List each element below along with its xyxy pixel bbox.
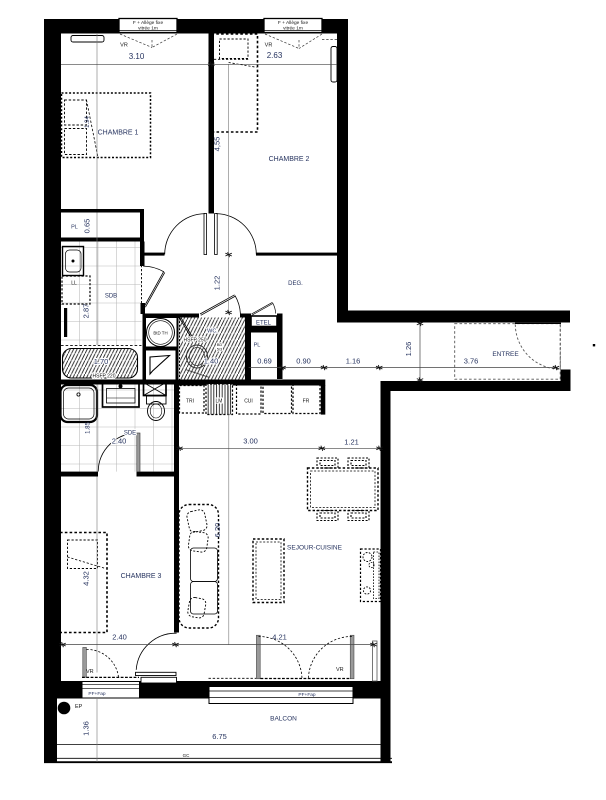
svg-text:HSFP 250: HSFP 250 (184, 338, 207, 344)
svg-text:FR: FR (303, 399, 310, 405)
svg-text:TRI: TRI (186, 399, 194, 405)
svg-text:BtD TH: BtD TH (153, 331, 167, 336)
svg-text:VR: VR (336, 667, 344, 673)
svg-text:1.21: 1.21 (344, 438, 359, 447)
svg-text:VR: VR (86, 669, 94, 675)
svg-text:0.69: 0.69 (257, 357, 272, 366)
svg-text:PF+Fap: PF+Fap (88, 691, 106, 697)
svg-text:DEG.: DEG. (288, 281, 303, 287)
svg-text:VR: VR (120, 43, 128, 49)
svg-text:PL: PL (71, 225, 78, 231)
svg-text:vitrée 1m: vitrée 1m (138, 25, 158, 31)
svg-text:4.21: 4.21 (272, 633, 287, 642)
svg-text:PL: PL (254, 343, 261, 349)
svg-text:WC.: WC. (207, 329, 218, 335)
svg-text:F + Allège fixe: F + Allège fixe (278, 20, 309, 26)
svg-text:SEJOUR-CUISINE: SEJOUR-CUISINE (287, 545, 343, 552)
svg-text:1.40: 1.40 (204, 357, 219, 366)
svg-text:HSFP 220: HSFP 220 (93, 374, 116, 380)
svg-text:GC: GC (183, 753, 191, 758)
svg-text:PF+Fap: PF+Fap (298, 692, 316, 698)
svg-text:CHAMBRE 1: CHAMBRE 1 (98, 130, 139, 137)
svg-text:0.90: 0.90 (296, 357, 311, 366)
svg-text:2.63: 2.63 (267, 51, 283, 60)
svg-text:LM: LM (216, 399, 223, 405)
svg-text:2.87: 2.87 (82, 304, 91, 319)
svg-text:5/3: 5/3 (217, 347, 223, 352)
svg-text:2.40: 2.40 (112, 633, 127, 642)
svg-text:LL: LL (71, 281, 77, 287)
svg-text:1.16: 1.16 (346, 357, 361, 366)
svg-text:1.85: 1.85 (86, 422, 92, 434)
svg-text:2.40: 2.40 (112, 437, 127, 446)
svg-text:VR: VR (265, 43, 273, 49)
svg-text:F + Allège fixe: F + Allège fixe (133, 20, 164, 26)
svg-text:BALCON: BALCON (270, 716, 297, 723)
svg-text:1.26: 1.26 (404, 342, 413, 357)
svg-text:EP: EP (75, 704, 83, 710)
svg-text:ENTREE: ENTREE (492, 351, 519, 358)
svg-text:1.94: 1.94 (85, 116, 91, 128)
svg-text:4,55: 4,55 (213, 137, 222, 152)
svg-text:0.65: 0.65 (83, 219, 92, 234)
svg-text:6.20: 6.20 (213, 523, 222, 538)
svg-text:3.10: 3.10 (129, 52, 145, 61)
svg-text:CHAMBRE 3: CHAMBRE 3 (121, 573, 162, 580)
svg-text:4.32: 4.32 (82, 571, 91, 586)
svg-text:CUI: CUI (244, 399, 253, 405)
svg-text:1.70: 1.70 (94, 357, 109, 366)
svg-text:1.36: 1.36 (82, 721, 91, 736)
svg-text:3.00: 3.00 (243, 437, 258, 446)
svg-text:CHAMBRE 2: CHAMBRE 2 (269, 156, 310, 163)
svg-text:3.76: 3.76 (464, 357, 479, 366)
svg-text:vitrée 1m: vitrée 1m (283, 25, 303, 31)
svg-text:1.22: 1.22 (213, 276, 222, 291)
svg-text:6.75: 6.75 (212, 732, 227, 741)
svg-text:SDB: SDB (105, 294, 117, 300)
svg-text:ETEL: ETEL (256, 321, 272, 327)
